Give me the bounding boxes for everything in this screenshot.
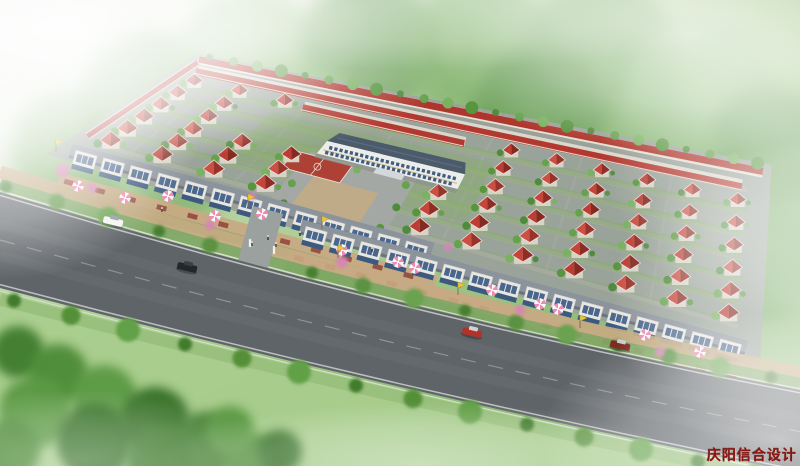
yard-tree — [569, 229, 577, 237]
street-tree — [7, 294, 21, 308]
yard-tree — [462, 222, 470, 230]
yard-tree — [542, 159, 549, 166]
yard-tree — [497, 149, 504, 156]
street-tree — [306, 267, 318, 279]
street-tree — [202, 237, 218, 253]
street-tree — [557, 324, 577, 344]
pedestrian-head — [299, 231, 301, 233]
parasol-top — [414, 267, 416, 269]
yard-tree — [275, 153, 283, 161]
yard-tree — [535, 178, 542, 185]
yard-tree — [581, 189, 588, 196]
yard-tree — [422, 191, 430, 199]
blossom-tree — [515, 305, 525, 315]
yard-tree — [587, 169, 594, 176]
blossom-tree — [205, 220, 215, 230]
parasol — [209, 210, 221, 222]
yard-tree — [402, 226, 410, 234]
street-tree — [153, 225, 165, 237]
watermark-text: 庆阳信合设计 — [707, 445, 797, 465]
street-tree — [459, 305, 471, 317]
parasol-top — [261, 213, 263, 215]
yard-tree — [454, 240, 462, 248]
pedestrian-head — [267, 235, 269, 237]
street-tree — [178, 337, 192, 351]
blossom-tree — [444, 243, 452, 251]
pedestrian-head — [371, 247, 373, 249]
yard-tree — [505, 254, 513, 262]
yard-tree — [527, 197, 534, 204]
yard-tree — [533, 256, 539, 262]
yard-tree — [275, 184, 281, 190]
yard-tree — [496, 205, 502, 211]
street-tree — [62, 306, 81, 325]
yard-tree — [557, 269, 565, 277]
yard-tree — [248, 182, 256, 190]
pedestrian-head — [275, 242, 277, 244]
gate-post — [249, 239, 252, 247]
rear-tree — [442, 98, 453, 109]
street-tree — [355, 278, 371, 294]
yard-tree — [412, 208, 420, 216]
yard-tree — [488, 167, 495, 174]
pedestrian — [251, 241, 253, 246]
parasol-top — [539, 303, 541, 305]
yard-tree — [439, 210, 445, 216]
street-tree — [349, 379, 363, 393]
parasol-top — [491, 289, 493, 291]
pedestrian-head — [251, 241, 253, 243]
parasol-top — [557, 308, 559, 310]
yard-tree — [513, 235, 521, 243]
street-tree — [116, 318, 140, 342]
yard-tree — [589, 251, 595, 257]
yard-tree — [480, 186, 487, 193]
street-tree — [508, 315, 524, 331]
yard-tree — [471, 204, 479, 212]
plaza-tree — [402, 181, 410, 189]
parasol-top — [397, 261, 399, 263]
street-tree — [404, 288, 424, 308]
plaza-tree — [392, 203, 400, 211]
plaza-tree — [288, 179, 296, 187]
parasol-top — [214, 215, 216, 217]
aerial-rendering: 庆阳信合设计 — [0, 0, 800, 466]
street-tree — [287, 360, 311, 384]
yard-tree — [552, 199, 557, 204]
rendering-canvas — [0, 0, 800, 466]
yard-tree — [520, 216, 528, 224]
street-tree — [233, 349, 252, 368]
gate-post — [273, 246, 276, 254]
yard-tree — [575, 209, 582, 216]
yard-tree — [196, 168, 204, 176]
yard-tree — [563, 249, 571, 257]
